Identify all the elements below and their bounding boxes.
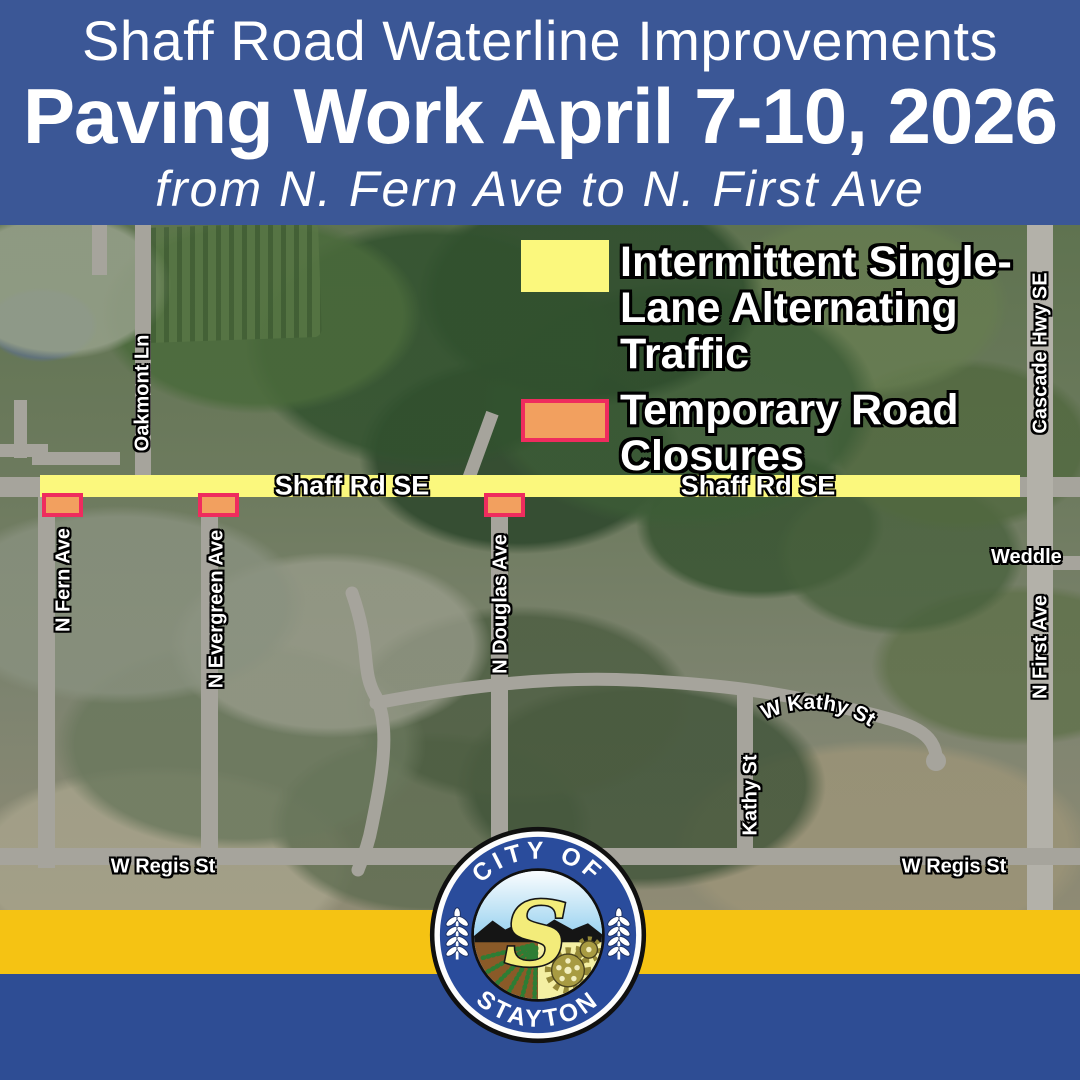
city-of-stayton-logo: S CITY OF STAYTON — [429, 826, 647, 1044]
closure-box-n-fern-ave — [42, 493, 83, 517]
curved-roads: W Kathy St — [0, 225, 1080, 910]
street-label-cascade-hwy-se: Cascade Hwy SE — [1030, 272, 1053, 433]
street-label-shaff-rd-west: Shaff Rd SE — [275, 471, 430, 502]
header-date-range: from N. Fern Ave to N. First Ave — [155, 160, 925, 218]
cul-de-sac — [926, 751, 946, 771]
street-label-w-kathy-st: W Kathy St — [758, 691, 879, 731]
header-banner: Shaff Road Waterline Improvements Paving… — [0, 0, 1080, 225]
street-label-shaff-rd-east: Shaff Rd SE — [681, 471, 836, 502]
road-lane-curve — [352, 593, 384, 870]
street-label-kathy-st: Kathy St — [740, 754, 763, 835]
map: W Kathy St Shaff Rd SE Shaff Rd SE Oakmo… — [0, 225, 1080, 910]
closure-box-n-douglas-ave — [484, 493, 525, 517]
street-label-n-douglas-ave: N Douglas Ave — [490, 534, 513, 674]
shaff-road-highlight — [40, 475, 1020, 497]
street-label-oakmont-ln: Oakmont Ln — [132, 335, 155, 452]
street-label-w-regis-st-east: W Regis St — [902, 856, 1006, 879]
closure-box-n-evergreen-ave — [198, 493, 239, 517]
street-label-n-evergreen-ave: N Evergreen Ave — [206, 530, 229, 689]
street-label-n-fern-ave: N Fern Ave — [53, 528, 76, 632]
flyer: Shaff Road Waterline Improvements Paving… — [0, 0, 1080, 1080]
street-label-weddle: Weddle — [991, 546, 1062, 569]
street-label-w-regis-st-west: W Regis St — [111, 856, 215, 879]
header-subtitle: Paving Work April 7-10, 2026 — [23, 72, 1057, 160]
page-title: Shaff Road Waterline Improvements — [82, 10, 998, 72]
street-label-n-first-ave: N First Ave — [1030, 595, 1053, 699]
seal-monogram: S — [504, 881, 568, 986]
